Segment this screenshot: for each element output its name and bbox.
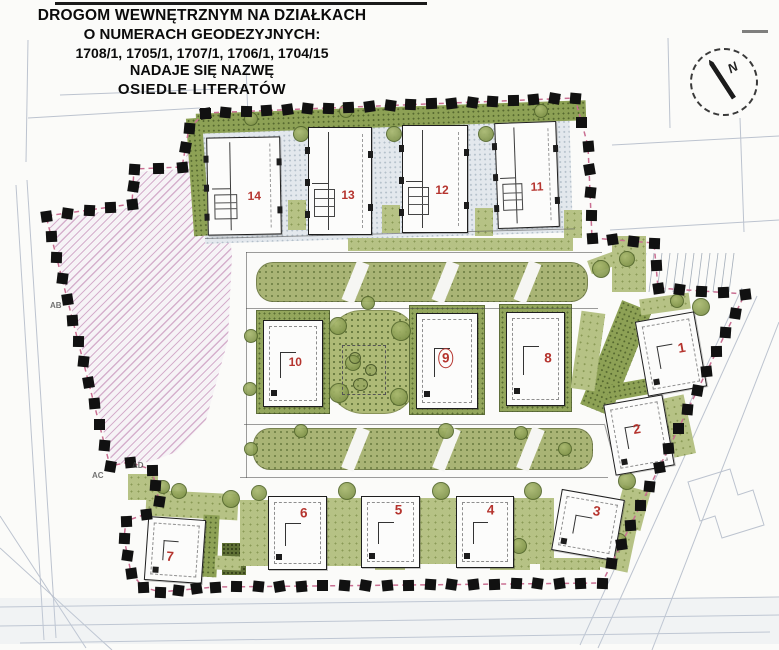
tree-icon [222,490,240,508]
green-area [240,500,268,566]
boundary-marker [701,365,713,377]
balcony-tick [368,151,373,158]
balcony-tick [399,177,404,184]
boundary-marker [40,210,52,222]
tree-icon [293,126,309,142]
boundary-marker [576,117,587,128]
boundary-marker [405,99,417,111]
stair-core [285,523,301,546]
title-line-2: O NUMERACH GEODEZYJNYCH: [8,25,396,44]
building-4: 4 [456,496,514,568]
green-area [418,498,456,564]
balcony-tick [399,209,404,216]
green-area [256,262,588,302]
building-9: 9 [416,313,478,409]
boundary-marker [323,102,334,113]
balcony-tick [553,145,558,152]
boundary-marker [584,186,596,198]
boundary-marker [381,579,393,591]
building-number-13: 13 [341,189,354,201]
boundary-marker [231,581,242,592]
resolution-title: DROGOM WEWNĘTRZNYM NA DZIAŁKACH O NUMERA… [8,6,396,99]
street-band [0,598,779,644]
boundary-marker [83,204,95,216]
boundary-marker [61,293,74,306]
entrance-block [561,537,568,544]
entrance-block [424,391,430,397]
boundary-marker [77,356,89,368]
boundary-marker [674,283,686,295]
balcony-tick [277,206,282,213]
boundary-marker [586,232,598,244]
boundary-marker [153,495,166,508]
boundary-marker [575,577,587,589]
boundary-marker [281,103,294,116]
boundary-marker [220,106,232,118]
building-inner-wall [212,188,230,189]
boundary-marker [317,580,328,591]
boundary-marker [596,577,607,588]
boundary-marker [384,99,396,111]
tree-icon [514,426,528,440]
boundary-point-label: AB [50,301,62,310]
roof-overhang-line [269,143,271,227]
entrance-block [271,390,277,396]
balcony-tick [305,147,310,154]
boundary-marker [508,95,519,106]
play-item-icon [365,364,377,376]
tree-icon [243,382,257,396]
boundary-marker [466,96,479,109]
balcony-tick [204,213,209,220]
boundary-marker [121,549,133,561]
balcony-tick [494,205,499,212]
boundary-marker [338,580,350,592]
boundary-marker [179,141,192,154]
building-number-5: 5 [395,503,403,517]
building-13: 13 [308,127,372,235]
tree-icon [619,251,635,267]
building-number-3: 3 [592,504,602,519]
green-area [215,556,241,571]
title-line-parcel-numbers: 1708/1, 1705/1, 1707/1, 1706/1, 1704/15 [8,44,396,62]
tree-icon [524,482,542,500]
entrance-block [464,553,470,559]
boundary-marker [125,567,137,579]
boundary-marker [126,198,138,210]
balcony-tick [464,202,469,209]
balcony-tick [305,179,310,186]
boundary-marker [644,481,656,493]
balcony-tick [492,143,497,150]
green-area [325,498,361,566]
green-area [540,558,600,570]
parking-gap [514,260,542,304]
boundary-marker [209,581,221,593]
entrance-block [621,458,628,465]
boundary-marker [190,582,203,595]
stair-core [573,514,593,536]
building-number-4: 4 [487,503,495,517]
boundary-marker [99,439,111,451]
balcony-tick [305,211,310,218]
boundary-point-label: AC [92,471,104,480]
boundary-marker [176,161,188,173]
balcony-tick [493,174,498,181]
tree-icon [329,317,347,335]
roof-overhang-line [547,128,551,219]
stair-core [378,522,394,544]
green-area [512,498,554,564]
boundary-marker [528,94,540,106]
boundary-marker [146,464,157,475]
compass-north-label: N [725,59,740,77]
stair-core [502,183,523,211]
building-number-11: 11 [530,181,543,193]
boundary-marker [583,163,596,176]
boundary-marker [241,106,252,117]
balcony-tick [203,156,208,163]
boundary-marker [510,578,522,590]
boundary-marker [696,285,708,297]
boundary-marker [424,579,436,591]
tree-icon [558,442,572,456]
green-area [288,200,306,230]
boundary-marker [729,307,742,320]
boundary-marker [67,314,79,326]
tree-icon [670,294,684,308]
road-edge [246,308,598,309]
stair-core [314,189,335,216]
boundary-marker [120,515,131,526]
boundary-marker [625,519,637,531]
tree-icon [361,296,375,310]
entrance-block [514,388,520,394]
boundary-marker [652,282,664,294]
stair-core [523,346,539,375]
building-number-1: 1 [677,340,687,355]
building-7: 7 [144,516,206,584]
tree-icon [534,104,548,118]
boundary-marker [154,586,165,597]
building-number-10: 10 [289,356,302,368]
boundary-marker [691,384,704,397]
building-number-7: 7 [166,550,174,564]
site-plan-document: DROGOM WEWNĘTRZNYM NA DZIAŁKACH O NUMERA… [0,0,779,650]
boundary-marker [487,95,499,107]
building-6: 6 [268,496,327,570]
boundary-marker [627,235,639,247]
building-8: 8 [506,312,565,406]
entrance-block [276,554,282,560]
balcony-tick [399,145,404,152]
parking-gap [341,426,370,472]
boundary-marker [445,578,458,591]
boundary-marker [467,578,479,590]
boundary-marker [615,538,628,551]
stair-core [473,522,489,544]
boundary-marker [104,460,117,473]
title-line-4: NADAJE SIĘ NAZWĘ [8,62,396,80]
tree-icon [478,126,494,142]
tree-icon [251,485,267,501]
boundary-marker [553,577,565,589]
boundary-marker [295,580,307,592]
boundary-marker [673,423,684,434]
boundary-marker [718,287,729,298]
boundary-marker [650,260,662,272]
stair-core [408,187,429,214]
tree-icon [432,482,450,500]
boundary-marker [635,500,646,511]
building-10: 10 [263,320,323,407]
building-12: 12 [402,125,468,233]
parking-gap [431,260,459,304]
boundary-marker [172,584,184,596]
boundary-marker [72,335,83,346]
tree-icon [244,329,258,343]
roof-overhang-line [458,132,459,225]
boundary-marker [46,231,58,243]
building-number-14: 14 [247,189,261,201]
green-area [348,238,573,251]
boundary-marker [128,163,140,175]
balcony-tick [464,149,469,156]
boundary-marker [137,581,149,593]
entrance-block [369,553,375,559]
boundary-marker [653,461,666,474]
boundary-marker [183,122,195,134]
tree-icon [338,482,356,500]
boundary-marker [261,105,273,117]
tree-icon [390,388,408,406]
building-number-6: 6 [300,506,308,520]
building-inner-wall [406,181,422,182]
building-inner-wall [500,177,515,179]
north-compass: N [690,48,758,116]
boundary-marker [531,577,543,589]
boundary-marker [711,346,722,357]
boundary-marker [446,97,458,109]
boundary-marker [548,92,561,105]
title-line-1: DROGOM WEWNĘTRZNYM NA DZIAŁKACH [8,6,396,25]
boundary-marker [127,180,140,193]
tree-icon [386,126,402,142]
boundary-marker [648,237,659,248]
boundary-marker [582,140,594,152]
boundary-marker [88,398,100,410]
boundary-marker [150,480,162,492]
building-inner-wall [312,183,328,184]
building-number-8: 8 [544,351,552,365]
tree-icon [692,298,710,316]
boundary-marker [152,162,163,173]
boundary-marker [359,579,372,592]
green-area [382,205,400,233]
boundary-marker [51,252,62,263]
boundary-marker [425,98,436,109]
boundary-marker [585,209,596,220]
entrance-block [152,566,158,572]
entrance-block [653,379,660,386]
balcony-tick [368,204,373,211]
tree-icon [438,423,454,439]
boundary-marker [140,508,152,520]
boundary-marker [343,101,355,113]
boundary-marker [302,103,314,115]
boundary-marker [61,207,73,219]
boundary-point-label: AD [132,461,144,470]
tree-icon [391,321,411,341]
boundary-marker [739,288,751,300]
boundary-marker [569,92,581,104]
boundary-marker [663,442,675,454]
building-number-9: 9 [438,348,454,368]
boundary-marker [200,108,211,119]
scan-mark [742,30,768,33]
boundary-marker [720,327,732,339]
road-edge [240,477,608,478]
play-item-icon [353,378,368,391]
boundary-marker [363,100,375,112]
balcony-tick [555,197,560,204]
boundary-marker [94,419,105,430]
estate-name: OSIEDLE LITERATÓW [8,80,396,99]
green-area [564,210,582,238]
building-14: 14 [206,136,282,235]
boundary-marker [82,376,95,389]
boundary-marker [105,201,116,212]
road-edge [246,252,602,253]
tree-icon [294,424,308,438]
boundary-marker [273,580,286,593]
play-item-icon [349,352,361,364]
boundary-marker [606,233,619,246]
building-11: 11 [494,121,560,229]
boundary-marker [489,578,500,589]
boundary-marker [605,558,617,570]
building-5: 5 [361,496,420,568]
tree-icon [592,260,610,278]
tree-icon [244,442,258,456]
stair-core [214,194,238,219]
boundary-marker [118,532,130,544]
tree-icon [171,483,187,499]
scan-edge-line [55,2,427,5]
boundary-marker [403,579,414,590]
boundary-marker [56,272,68,284]
boundary-marker [252,581,264,593]
building-3: 3 [551,489,625,561]
balcony-tick [204,185,209,192]
playground-equipment [342,345,386,395]
roof-overhang-line [362,134,363,227]
boundary-marker [682,404,694,416]
balcony-tick [276,158,281,165]
building-number-12: 12 [435,184,448,196]
